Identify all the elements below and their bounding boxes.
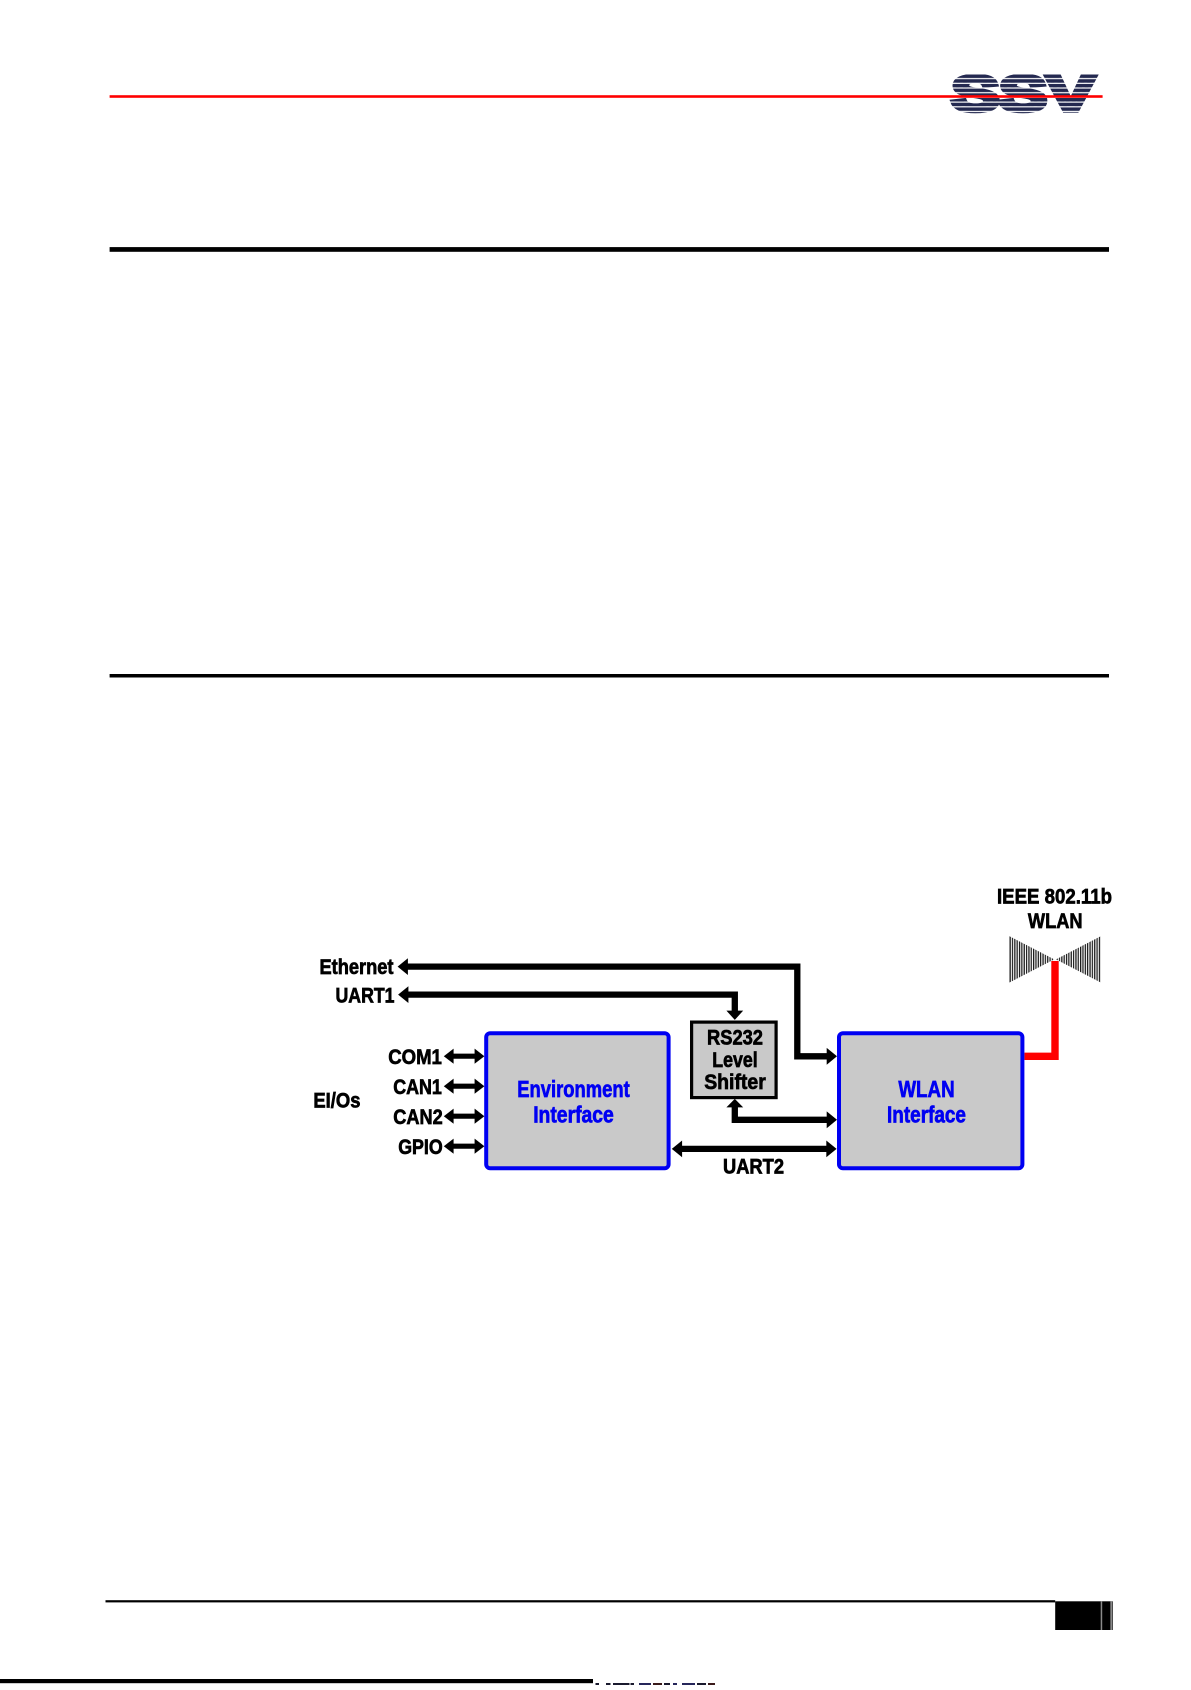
svg-text:WLAN: WLAN — [898, 1076, 954, 1102]
svg-text:GPIO: GPIO — [398, 1135, 443, 1159]
svg-text:WLAN: WLAN — [1028, 909, 1083, 933]
svg-text:UART2: UART2 — [723, 1155, 784, 1179]
svg-text:Interface: Interface — [887, 1102, 966, 1128]
svg-text:IEEE 802.11b: IEEE 802.11b — [997, 884, 1112, 908]
svg-text:UART1: UART1 — [336, 983, 395, 1007]
svg-text:EI/Os: EI/Os — [313, 1088, 360, 1112]
svg-text:Level: Level — [712, 1048, 757, 1072]
svg-text:Interface: Interface — [533, 1102, 614, 1128]
svg-text:SSV: SSV — [952, 68, 1095, 122]
svg-text:Ethernet: Ethernet — [320, 955, 394, 979]
svg-text:Environment: Environment — [517, 1076, 630, 1102]
svg-text:CAN1: CAN1 — [393, 1075, 442, 1099]
svg-text:COM1: COM1 — [388, 1045, 442, 1069]
svg-text:Shifter: Shifter — [704, 1070, 766, 1094]
svg-text:CAN2: CAN2 — [393, 1105, 443, 1129]
svg-text:RS232: RS232 — [707, 1026, 763, 1050]
